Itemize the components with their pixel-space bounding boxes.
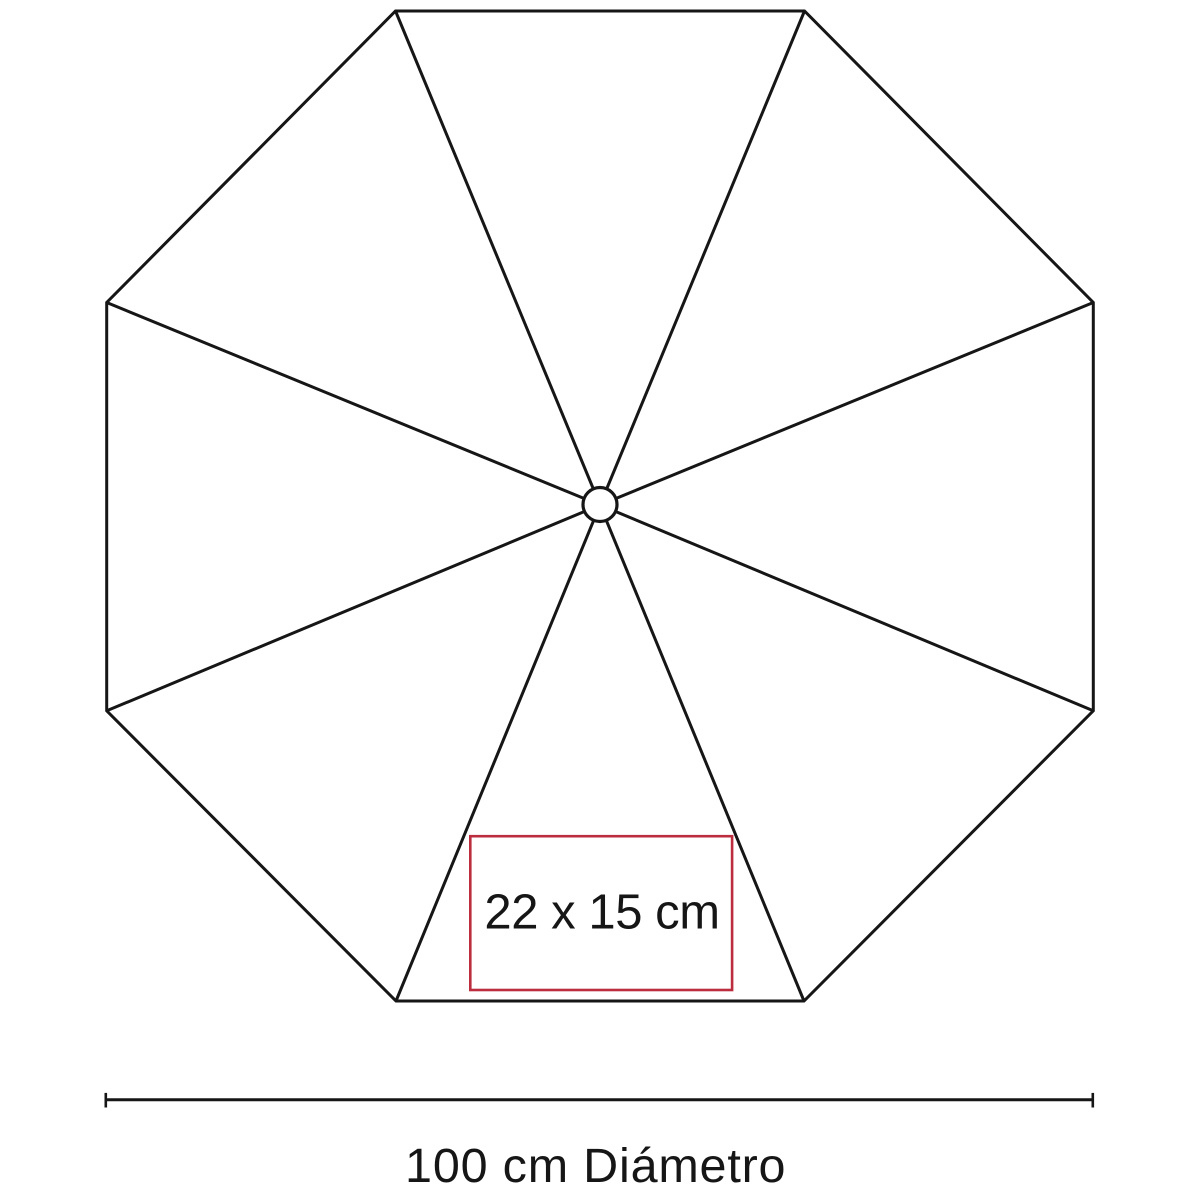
svg-text:100 cm Diámetro: 100 cm Diámetro	[405, 1139, 786, 1193]
svg-text:22 x 15 cm: 22 x 15 cm	[484, 886, 719, 940]
